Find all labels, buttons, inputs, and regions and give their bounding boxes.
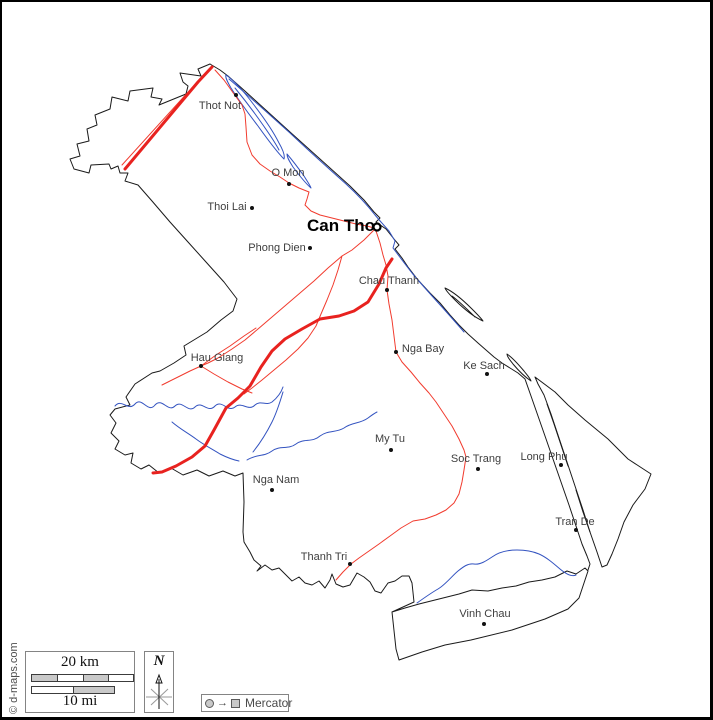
- city-label-thot-not: Thot Not: [199, 100, 241, 112]
- city-label-thanh-tri: Thanh Tri: [301, 551, 347, 563]
- scale-segment: [83, 675, 109, 681]
- city-dot-chau-thanh: [385, 288, 389, 292]
- highway-north: [125, 67, 212, 169]
- city-label-hau-giang: Hau Giang: [191, 352, 244, 364]
- city-label-o-mon: O Mon: [271, 167, 304, 179]
- city-label-tran-de: Tran De: [555, 516, 594, 528]
- city-dot-o-mon: [287, 182, 291, 186]
- capital-label-can-tho: Can Tho: [307, 216, 375, 236]
- scale-bar-km: [31, 674, 134, 682]
- east-peninsula-outline: [535, 377, 651, 567]
- projection-label: Mercator: [243, 696, 292, 710]
- scale-segment: [57, 675, 83, 681]
- south-river: [417, 550, 576, 603]
- scale-segment: [108, 675, 133, 681]
- city-label-phong-dien: Phong Dien: [248, 242, 306, 254]
- scale-segment: [32, 675, 57, 681]
- city-label-soc-trang: Soc Trang: [451, 453, 501, 465]
- arrow-right-icon: →: [217, 698, 228, 709]
- city-label-chau-thanh: Chau Thanh: [359, 275, 419, 287]
- city-dot-long-phu: [559, 463, 563, 467]
- projected-square-icon: [231, 699, 240, 708]
- projection-legend: → Mercator: [201, 694, 289, 712]
- city-dot-nga-bay: [394, 350, 398, 354]
- city-dot-soc-trang: [476, 467, 480, 471]
- compass-north-label: N: [145, 653, 173, 670]
- scale-mi-label: 10 mi: [26, 693, 134, 710]
- city-dot-thanh-tri: [348, 562, 352, 566]
- city-dot-nga-nam: [270, 488, 274, 492]
- city-label-ke-sach: Ke Sach: [463, 360, 505, 372]
- city-label-my-tu: My Tu: [375, 433, 405, 445]
- road-hau-giang-southeast: [201, 366, 252, 393]
- scale-box: 20 km 10 mi: [25, 651, 135, 713]
- map-geometry-svg: [2, 2, 713, 720]
- city-label-vinh-chau: Vinh Chau: [459, 608, 510, 620]
- city-dot-ke-sach: [485, 372, 489, 376]
- city-dot-thot-not: [234, 93, 238, 97]
- city-dot-tran-de: [574, 528, 578, 532]
- river-island-lens-south: [507, 354, 531, 381]
- city-label-nga-nam: Nga Nam: [253, 474, 299, 486]
- city-dot-vinh-chau: [482, 622, 486, 626]
- city-label-long-phu: Long Phu: [520, 451, 567, 463]
- west-wiggly-river: [115, 387, 283, 409]
- city-dot-phong-dien: [308, 246, 312, 250]
- river-branch-southwest: [172, 422, 239, 461]
- city-dot-hau-giang: [199, 364, 203, 368]
- region-border-northeast-river: [210, 64, 590, 570]
- compass-star-icon: [145, 671, 173, 711]
- copyright-text: © d-maps.com: [8, 642, 20, 714]
- city-dot-my-tu: [389, 448, 393, 452]
- highway-national-1: [153, 259, 392, 473]
- region-border-west: [70, 64, 588, 660]
- hau-river-channel: [229, 79, 464, 332]
- compass-box: N: [144, 651, 174, 713]
- scale-km-label: 20 km: [26, 654, 134, 671]
- globe-circle-icon: [205, 699, 214, 708]
- river-branch-east: [247, 412, 377, 460]
- river-connector: [253, 392, 283, 452]
- map-canvas: Thot Not O Mon Thoi Lai Phong Dien Chau …: [0, 0, 713, 720]
- city-dot-thoi-lai: [250, 206, 254, 210]
- city-label-nga-bay: Nga Bay: [402, 343, 444, 355]
- city-label-thoi-lai: Thoi Lai: [207, 201, 246, 213]
